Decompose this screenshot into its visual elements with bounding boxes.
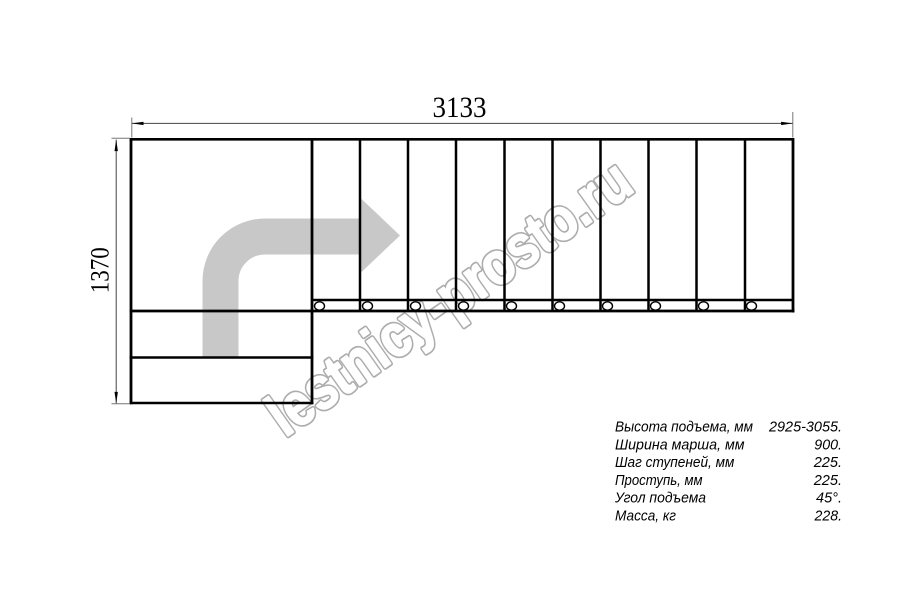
svg-text:Ширина марша, мм: Ширина марша, мм — [615, 436, 745, 453]
svg-text:45°.: 45°. — [816, 490, 842, 507]
svg-text:Шаг ступеней, мм: Шаг ступеней, мм — [615, 454, 735, 471]
svg-text:228.: 228. — [814, 508, 842, 525]
svg-text:Высота подъема, мм: Высота подъема, мм — [615, 419, 754, 436]
svg-text:225.: 225. — [813, 472, 842, 489]
svg-text:Угол подъема: Угол подъема — [614, 490, 706, 507]
svg-text:2925-3055.: 2925-3055. — [768, 419, 842, 436]
svg-text:225.: 225. — [813, 454, 842, 471]
svg-text:1370: 1370 — [86, 247, 115, 293]
svg-text:900.: 900. — [814, 436, 842, 453]
svg-text:Масса, кг: Масса, кг — [615, 508, 676, 525]
svg-text:Проступь, мм: Проступь, мм — [615, 472, 703, 489]
svg-text:3133: 3133 — [433, 91, 487, 124]
